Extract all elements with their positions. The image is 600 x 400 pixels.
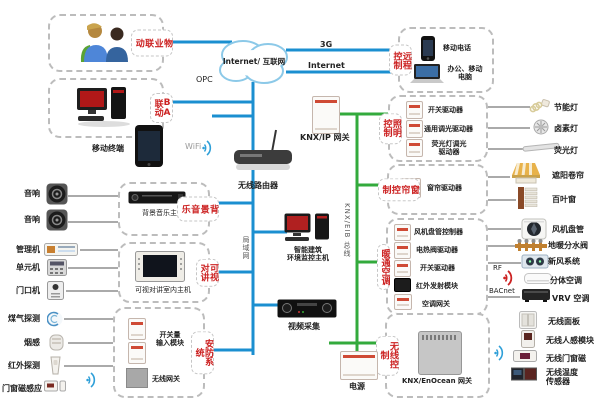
- fan-coil-controller-label: 风机盘管控制器: [414, 228, 463, 236]
- vrv-ac-icon: [521, 288, 551, 303]
- speaker-2-label: 音响: [24, 215, 40, 224]
- management-unit-icon: [44, 243, 78, 256]
- wireless-router-icon: [232, 128, 294, 178]
- wireless-box: 无线控制 KNX/EnOcean 网关: [385, 313, 490, 398]
- security-tab: 安防系统: [191, 331, 214, 375]
- door-magnet-label: 门窗磁感应: [2, 384, 42, 393]
- enocean-gateway-label: KNX/EnOcean 网关: [391, 377, 483, 385]
- hvac-tab: 暖通空调: [377, 244, 390, 290]
- lighting-tab: 照明控制: [379, 113, 402, 145]
- ac-gateway-icon: [394, 294, 412, 310]
- rf-waves-icon: [503, 268, 519, 288]
- wireless-motion-sensor-icon: [521, 330, 535, 348]
- hvac-switch-actuator-label: 开关驱动器: [420, 264, 455, 272]
- fan-coil-icon: [521, 218, 547, 240]
- wifi-waves-icon: [86, 370, 102, 390]
- switch-actuator-icon: [406, 101, 423, 119]
- switch-actuator-icon: [394, 260, 411, 277]
- monitoring-host-label: 智能建筑 环境监控主机: [278, 246, 338, 262]
- manifold-label: 地暖分水阀: [548, 241, 588, 250]
- property-linkage-box: 物业联动: [48, 14, 164, 72]
- cfl-lamp-label: 节能灯: [554, 103, 578, 112]
- speaker-icon: [46, 183, 68, 205]
- wireless-door-magnet-icon: [513, 350, 537, 362]
- fluorescent-tube-label: 荧光灯: [554, 146, 578, 155]
- knx-ip-gateway-label: KNX/IP 网关: [300, 133, 350, 142]
- switch-actuator-label: 开关驱动器: [428, 106, 463, 114]
- tablet-icon: [134, 124, 164, 168]
- hvac-box: 暖通空调 风机盘管控制器 电热阀驱动器 开关驱动器 红外发射模块 空调网关: [386, 218, 488, 315]
- wifi-waves-icon: [494, 343, 510, 363]
- intercom-host-label: 可视对讲室内主机: [122, 286, 204, 294]
- lighting-box: 照明控制 开关驱动器 通用调光驱动器 荧光灯调光 驱动器: [388, 95, 488, 162]
- power-supply-label: 电源: [349, 382, 365, 391]
- io-module-label: 开关量 输入模块: [149, 331, 191, 347]
- io-module-icon: [128, 342, 146, 364]
- cfl-lamp-icon: [528, 98, 550, 115]
- people-icon: [78, 21, 132, 63]
- remote-control-tab: 远程控制: [389, 45, 412, 76]
- split-ac-icon: [524, 273, 552, 284]
- laptop-icon: [408, 63, 446, 85]
- gas-detector-icon: [47, 311, 63, 327]
- security-wireless-gateway-icon: [126, 368, 148, 388]
- wifi-label: WiFi: [185, 142, 201, 151]
- bgm-tab: 背景音乐: [177, 197, 219, 222]
- speaker-1-label: 音响: [24, 189, 40, 198]
- wireless-motion-sensor-label: 无线人感模块: [546, 336, 594, 345]
- security-box: 安防系统 开关量 输入模块 无线网关: [113, 307, 205, 398]
- link-3g-label: 3G: [320, 40, 332, 49]
- ba-linkage-tab: BA联动: [150, 93, 173, 123]
- video-capture-label: 视频采集: [288, 322, 320, 331]
- link-internet-label: Internet: [308, 61, 345, 70]
- awning-label: 遮阳卷帘: [552, 171, 584, 180]
- fan-coil-controller-icon: [394, 224, 411, 241]
- speaker-icon: [46, 209, 68, 231]
- curtain-tab: 窗帘控制: [378, 178, 420, 202]
- halogen-lamp-label: 卤素灯: [554, 124, 578, 133]
- remote-control-box: 远程控制 移动电话 办公、移动 电脑: [398, 27, 494, 93]
- rf-label: RF: [493, 264, 502, 272]
- awning-icon: [508, 161, 544, 184]
- ac-gateway-label: 空调网关: [422, 300, 450, 308]
- split-ac-label: 分体空调: [550, 276, 582, 285]
- desktop-computer-icon: [76, 86, 132, 128]
- fan-coil-label: 风机盘管: [552, 225, 584, 234]
- intercom-box: 可视对讲 可视对讲室内主机: [118, 242, 210, 303]
- heat-valve-actuator-icon: [394, 242, 411, 259]
- office-computer-label: 办公、移动 电脑: [444, 65, 486, 81]
- wireless-temp-sensor-icon: [511, 366, 537, 382]
- mobile-phone-icon: [420, 35, 436, 62]
- fluorescent-dimmer-icon: [406, 139, 423, 157]
- manifold-icon: [514, 238, 548, 253]
- smoke-detector-icon: [48, 333, 65, 352]
- enocean-gateway-icon: [418, 331, 462, 375]
- ir-emitter-module-icon: [394, 278, 411, 292]
- ir-detector-label: 红外探测: [8, 361, 40, 370]
- bacnet-label: BACnet: [489, 287, 515, 295]
- wireless-temp-sensor-label: 无线温度 传感器: [546, 368, 578, 386]
- ir-emitter-module-label: 红外发射模块: [416, 282, 458, 290]
- door-magnet-icon: [44, 380, 66, 392]
- mobile-phone-label: 移动电话: [443, 44, 471, 52]
- fluorescent-dimmer-label: 荧光灯调光 驱动器: [423, 140, 475, 156]
- knx-ip-gateway-icon: [312, 96, 340, 134]
- door-station-icon: [47, 281, 64, 300]
- bgm-box: 背景音乐 背景音乐主机: [118, 182, 210, 236]
- lan-bus-label: 局域网: [241, 236, 251, 260]
- wireless-tab: 无线控制: [376, 335, 399, 376]
- fresh-air-icon: [521, 252, 549, 270]
- smart-building-diagram: Internet/ 互联网 3G Internet OPC WiFi 局域网 K…: [0, 0, 600, 400]
- dimmer-actuator-icon: [406, 120, 423, 138]
- door-station-label: 门口机: [16, 286, 40, 295]
- link-opc-label: OPC: [196, 75, 213, 84]
- video-capture-icon: [277, 299, 337, 318]
- intercom-host-icon: [135, 251, 185, 282]
- knx-bus-label: KNX/EIB 总线: [342, 203, 352, 258]
- fresh-air-label: 新风系统: [548, 257, 580, 266]
- power-supply-icon: [340, 351, 378, 380]
- monitoring-host-icon: [284, 213, 330, 245]
- smoke-detector-label: 烟感: [24, 338, 40, 347]
- ir-detector-icon: [49, 356, 62, 375]
- curtain-box: 窗帘控制 窗帘驱动器: [387, 164, 488, 215]
- unit-machine-label: 单元机: [16, 263, 40, 272]
- wireless-door-magnet-label: 无线门窗磁: [546, 354, 586, 363]
- wireless-panel-label: 无线面板: [548, 317, 580, 326]
- wireless-panel-icon: [519, 311, 537, 329]
- wireless-router-label: 无线路由器: [238, 181, 278, 190]
- cloud-label: Internet/ 互联网: [222, 58, 286, 67]
- dimmer-actuator-label: 通用调光驱动器: [424, 125, 473, 133]
- unit-machine-icon: [47, 259, 67, 276]
- management-unit-label: 管理机: [16, 245, 40, 254]
- intercom-tab: 可视对讲: [196, 258, 219, 287]
- blinds-label: 百叶窗: [552, 195, 576, 204]
- heat-valve-actuator-label: 电热阀驱动器: [416, 246, 458, 254]
- blinds-icon: [517, 186, 539, 210]
- property-linkage-tab: 物业联动: [131, 30, 173, 57]
- security-wireless-gateway-label: 无线网关: [152, 375, 180, 383]
- gas-detector-label: 煤气探测: [8, 314, 40, 323]
- mobile-terminal-label: 移动终端: [92, 144, 124, 153]
- vrv-ac-label: VRV 空调: [552, 294, 589, 303]
- io-module-icon: [128, 318, 146, 340]
- halogen-lamp-icon: [532, 119, 550, 136]
- curtain-actuator-label: 窗帘驱动器: [427, 184, 462, 192]
- wifi-waves-icon: [202, 138, 218, 158]
